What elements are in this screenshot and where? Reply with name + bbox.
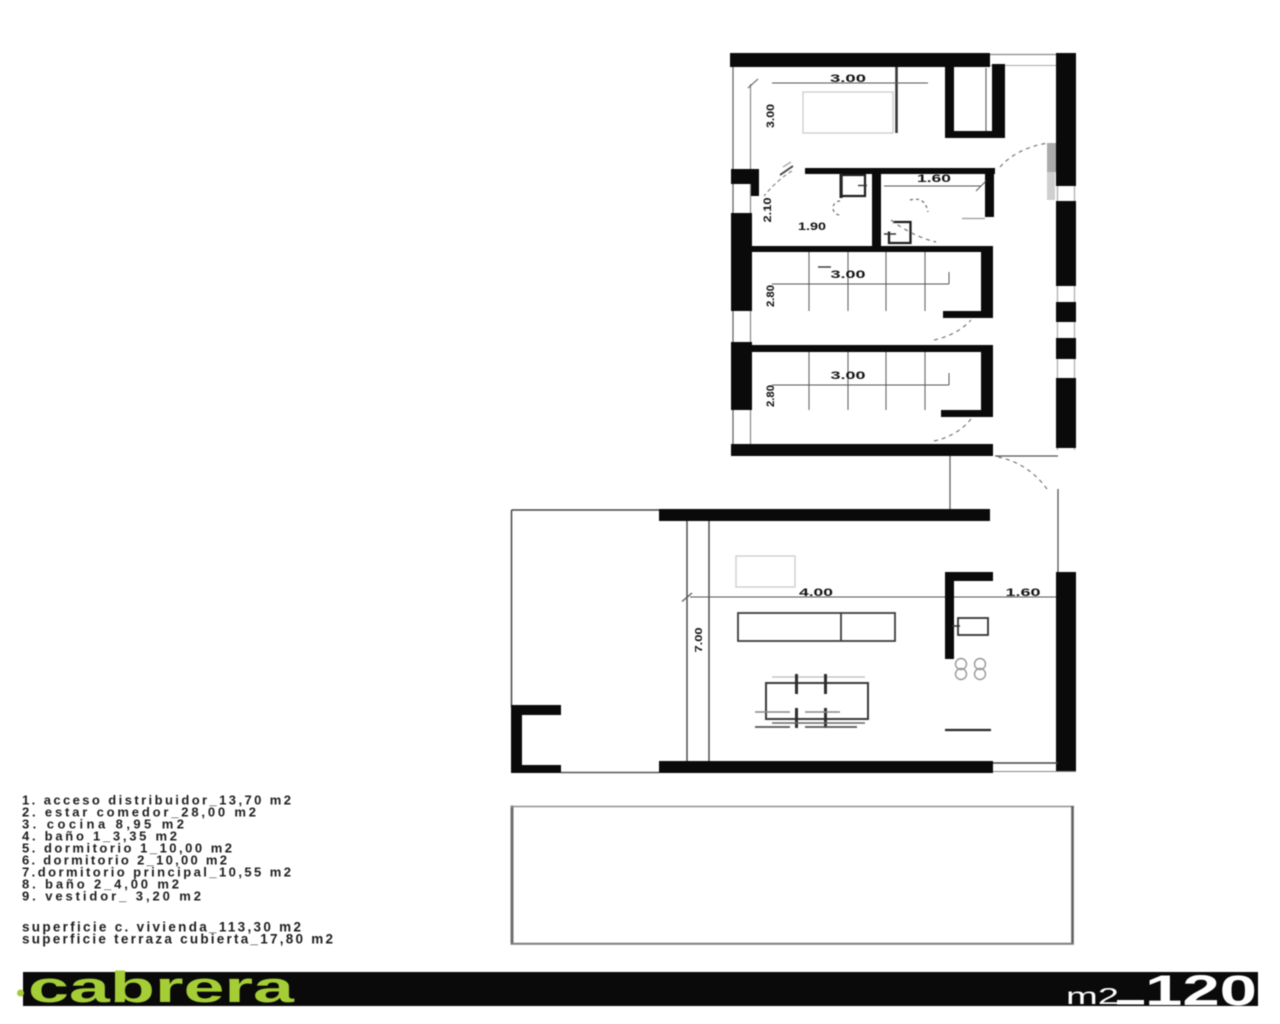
svg-text:3.00: 3.00: [831, 370, 866, 382]
svg-text:m2: m2: [1066, 983, 1119, 1009]
svg-text:2.80: 2.80: [765, 285, 777, 307]
svg-text:9. vestidor_ 3,20 m2: 9. vestidor_ 3,20 m2: [22, 889, 201, 904]
svg-text:1.60: 1.60: [1006, 587, 1041, 599]
svg-text:120: 120: [1145, 967, 1257, 1015]
svg-text:4.00: 4.00: [799, 587, 833, 599]
svg-text:cabrera: cabrera: [28, 963, 295, 1012]
svg-text:2.80: 2.80: [765, 385, 777, 407]
svg-text:1.90: 1.90: [798, 221, 826, 233]
svg-text:2.10: 2.10: [762, 198, 774, 223]
svg-text:3.00: 3.00: [765, 104, 777, 128]
svg-text:7.00: 7.00: [694, 627, 705, 653]
svg-text:1.60: 1.60: [917, 173, 951, 185]
svg-text:3.00: 3.00: [830, 73, 866, 85]
svg-text:superficie terraza cubierta_17: superficie terraza cubierta_17,80 m2: [22, 932, 333, 947]
svg-text:3.00: 3.00: [831, 269, 866, 281]
